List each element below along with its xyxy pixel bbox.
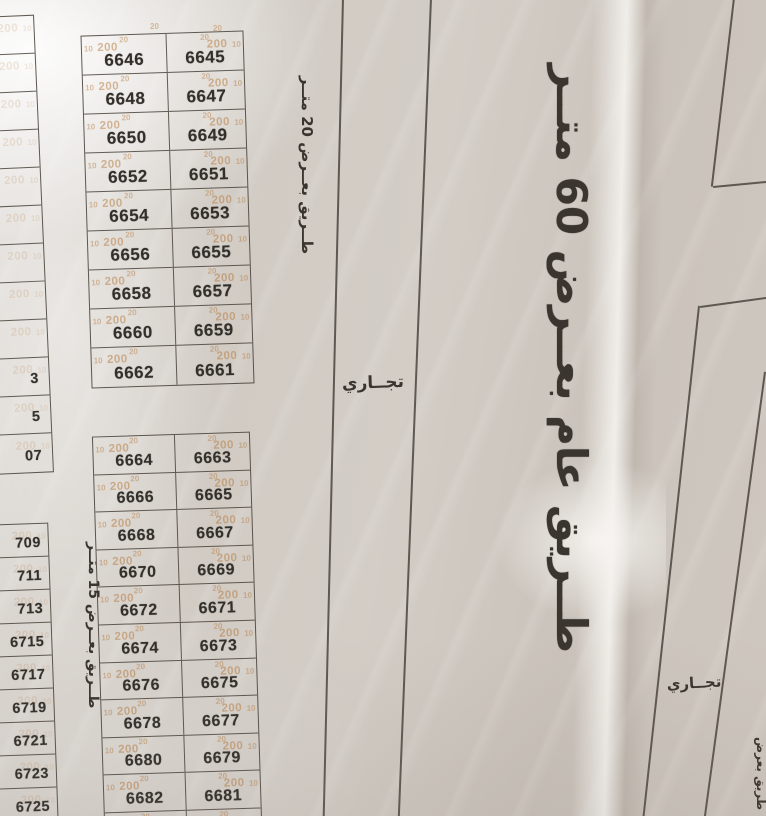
table-row: 200 10 6721 <box>0 722 55 758</box>
dimension-annotation: 200 10 <box>9 284 44 303</box>
plot-number: 6668 <box>96 526 178 547</box>
plot-cell: 200 10 20 6651 <box>169 149 247 189</box>
plot-number: 6679 <box>185 749 260 769</box>
commercial-strip-left-line <box>323 0 344 816</box>
plot-block-left-upper: 200 10 200 10 200 10 200 1 <box>0 15 54 476</box>
table-row: 10 200 20 6648 200 10 20 6647 <box>83 71 245 115</box>
table-row: 10 200 20 6678 200 10 20 6677 <box>101 696 258 738</box>
plot-cell: 200 10 6715 <box>0 623 52 658</box>
dimension-annotation: 200 10 <box>5 208 40 227</box>
plot-cell: 200 10 <box>0 92 38 132</box>
table-row: 10 200 20 6668 200 10 20 6667 <box>95 508 252 550</box>
table-row: 200 10 713 <box>0 590 51 626</box>
plot-cell: 200 10 6719 <box>0 689 54 724</box>
table-row: 200 10 6717 <box>0 656 53 692</box>
plot-number: 6652 <box>86 166 171 189</box>
plot-cell: 200 10 20 6645 <box>165 32 243 72</box>
plot-cell: 10 200 20 6664 <box>93 435 175 474</box>
plot-number: 6661 <box>177 359 254 381</box>
frontage-mark: 20 <box>99 623 180 635</box>
plot-cell: 200 10 6725 <box>0 787 58 816</box>
frontage-mark: 20 <box>96 548 177 560</box>
plot-cell: 10 200 20 6676 <box>100 660 182 699</box>
plot-number: 6719 <box>12 700 47 717</box>
plot-cell: 10 200 20 6666 <box>94 473 176 512</box>
mid-right-block-top-line <box>700 297 766 308</box>
plot-cell: 10 200 20 6682 <box>104 773 186 812</box>
dimension-annotation: 200 10 <box>0 18 32 37</box>
plot-cell: 200 10 20 6657 <box>173 265 251 305</box>
plot-cell: 10 200 20 6670 <box>96 548 178 587</box>
table-row: 200 10 <box>0 92 38 133</box>
table-row: 200 10 <box>0 281 46 322</box>
frontage-mark: 20 <box>84 112 168 124</box>
table-row: 10 200 20 6676 200 10 20 6675 <box>100 658 257 700</box>
plot-cell: 10 200 20 6662 <box>91 346 176 388</box>
plot-number: 6673 <box>181 636 256 656</box>
table-row: 200 10 3 <box>0 357 50 398</box>
plot-number: 6677 <box>184 711 259 731</box>
plot-number: 6658 <box>89 283 174 306</box>
plot-number: 6663 <box>175 448 250 468</box>
plot-number: 3 <box>30 371 39 387</box>
dimension-annotation: 200 10 <box>7 246 42 265</box>
plot-cell: 200 10 07 <box>0 433 53 474</box>
table-row: 10 200 20 6652 200 10 20 6651 <box>85 149 247 193</box>
top-right-block-side-line <box>711 0 735 187</box>
table-row: 10 200 20 6670 200 10 20 6669 <box>96 545 253 587</box>
table-row: 200 10 <box>0 319 48 360</box>
frontage-mark: 20 <box>93 435 174 447</box>
plot-number: 6670 <box>97 563 179 584</box>
plot-cell: 10 200 20 6646 <box>82 34 167 75</box>
plot-number: 6678 <box>102 714 184 735</box>
plot-number: 6651 <box>171 163 248 185</box>
frontage-mark: 20 <box>187 808 261 816</box>
plot-number: 6649 <box>169 125 246 147</box>
table-row: 200 10 <box>0 54 36 95</box>
plot-cell: 200 10 20 6675 <box>181 658 257 697</box>
plot-number: 6671 <box>180 599 255 619</box>
plat-map-photo: 200 10 200 10 200 10 200 1 <box>0 0 766 816</box>
plot-number: 6666 <box>95 488 177 509</box>
plot-cell: 10 200 20 6648 <box>83 73 168 114</box>
plot-number: 6665 <box>177 486 252 506</box>
plot-number: 709 <box>15 535 41 552</box>
frontage-mark: 20 <box>90 307 174 319</box>
table-row: 200 10 07 <box>0 433 53 474</box>
plot-cell: 10 200 20 6672 <box>98 585 180 624</box>
frontage-mark: 20 <box>95 510 176 522</box>
plot-cell: 10 200 20 6660 <box>90 307 175 348</box>
frontage-mark: 20 <box>104 773 185 785</box>
table-row: 200 10 <box>0 130 40 171</box>
plot-number: 6715 <box>10 634 45 651</box>
top-right-block-bottom-line <box>713 181 766 188</box>
plot-cell: 10 200 20 6654 <box>86 190 171 231</box>
plot-cell: 200 10 <box>0 281 46 321</box>
table-row: 10 200 20 6682 200 10 20 6681 <box>104 771 261 813</box>
plot-block-upper: 10 200 20 6646 200 10 20 6645 10 200 20 … <box>80 31 254 389</box>
plot-number: 6660 <box>91 322 176 345</box>
plot-cell: 200 10 711 <box>0 557 49 592</box>
plot-cell: 200 10 20 6683 <box>186 808 262 816</box>
road-label-bottom-right: طريق بعرض <box>754 737 766 816</box>
table-row: 10 200 20 6662 200 10 20 6661 <box>91 343 253 387</box>
plot-number: 6674 <box>99 638 181 659</box>
plot-cell: 200 10 20 6671 <box>179 583 255 622</box>
dimension-annotation: 200 10 <box>0 56 34 75</box>
table-row: 10 200 20 6660 200 10 20 6659 <box>90 304 252 348</box>
plot-cell: 200 10 20 6679 <box>183 733 259 772</box>
table-row: 10 200 20 6666 200 10 20 6665 <box>94 470 251 512</box>
plot-number: 6650 <box>84 127 169 150</box>
dimension-annotation: 200 10 <box>2 132 37 151</box>
frontage-mark: 20 <box>83 73 167 85</box>
plot-cell: 200 10 <box>0 16 35 56</box>
frontage-mark: 20 <box>86 190 170 202</box>
plot-cell: 200 10 5 <box>0 395 51 435</box>
plot-cell: 200 10 20 6667 <box>176 508 252 547</box>
plot-cell: 200 10 713 <box>0 590 51 625</box>
table-row: 10 200 20 6664 200 10 20 6663 <box>93 433 250 475</box>
table-row: 200 10 <box>0 16 35 57</box>
plot-number: 6657 <box>174 280 251 302</box>
frontage-mark: 20 <box>91 346 175 358</box>
plot-cell: 10 200 20 6652 <box>85 151 170 192</box>
plot-cell: 200 10 <box>0 168 41 208</box>
plot-cell: 200 10 20 6669 <box>177 545 253 584</box>
plot-number: 6717 <box>11 667 46 684</box>
plot-cell: 10 200 20 6674 <box>99 623 181 662</box>
plot-number: 711 <box>17 568 42 585</box>
plot-number: 6647 <box>168 86 245 108</box>
frontage-mark: 20 <box>150 22 159 31</box>
plot-number: 6645 <box>167 47 244 69</box>
road-15m-label: طــريق بعــرض 15 متــر <box>85 542 101 702</box>
plot-number: 6667 <box>178 523 253 543</box>
frontage-mark: 20 <box>100 660 181 672</box>
plot-number: 713 <box>17 601 43 618</box>
plot-number: 07 <box>25 448 43 465</box>
plot-cell: 200 10 <box>0 54 36 94</box>
table-row: 10 200 20 6656 200 10 20 6655 <box>88 226 250 270</box>
plot-cell: 200 10 20 6655 <box>172 226 250 266</box>
plot-cell: 10 200 20 6658 <box>89 268 174 309</box>
table-row: 10 200 20 6654 200 10 20 6653 <box>86 187 248 231</box>
table-row: 200 10 <box>0 243 45 284</box>
plot-number: 6675 <box>182 674 257 694</box>
frontage-mark: 20 <box>98 585 179 597</box>
plot-cell: 200 10 6721 <box>0 722 55 757</box>
table-row: 10 200 20 6646 200 10 20 6645 <box>82 32 244 76</box>
plot-cell: 10 200 20 6656 <box>88 229 173 270</box>
dimension-annotation: 200 10 <box>0 94 35 113</box>
commercial-strip-right-line <box>398 0 432 816</box>
table-row: 200 10 <box>0 206 43 247</box>
plot-cell: 200 10 20 6659 <box>174 304 252 344</box>
plot-cell: 10 200 20 6650 <box>84 112 169 153</box>
table-row: 10 200 20 6658 200 10 20 6657 <box>89 265 251 309</box>
plot-block-lower: 10 200 20 6664 200 10 20 6663 10 200 20 … <box>92 432 264 816</box>
plot-number: 6656 <box>88 244 173 267</box>
plot-number: 6653 <box>172 202 249 224</box>
plot-cell: 200 10 20 6677 <box>182 696 258 735</box>
frontage-mark: 20 <box>85 151 169 163</box>
table-row: 10 200 20 6674 200 10 20 6673 <box>99 621 256 663</box>
frontage-mark: 20 <box>101 698 182 710</box>
table-row: 200 10 5 <box>0 395 51 436</box>
road-60m-label: طــريق عام بعــرض 60 متــر <box>547 64 596 534</box>
plot-cell: 200 10 20 6665 <box>175 470 251 509</box>
plot-number: 6681 <box>186 786 261 806</box>
plot-cell: 200 10 6717 <box>0 656 53 691</box>
plot-cell: 200 10 <box>0 319 48 359</box>
table-row: 10 200 20 6650 200 10 20 6649 <box>84 110 246 154</box>
plot-cell: 10 200 20 6680 <box>102 736 184 775</box>
plot-number: 6672 <box>98 601 180 622</box>
plot-number: 6664 <box>93 451 175 472</box>
plot-number: 6682 <box>104 789 186 810</box>
commercial-zone-label-mid: تجــاري <box>336 372 411 395</box>
frontage-mark: 20 <box>88 229 172 241</box>
plot-cell: 200 10 <box>0 130 40 170</box>
dimension-annotation: 200 10 <box>10 321 45 340</box>
plot-number: 6669 <box>179 561 254 581</box>
table-row: 200 10 709 <box>0 524 48 560</box>
plot-number: 6659 <box>176 319 253 341</box>
road-20m-label: طــريق بعــرض 20 متــر <box>298 68 316 262</box>
plot-number: 6676 <box>101 676 183 697</box>
plot-block-left-lower: 200 10 709 200 10 711 200 10 713 <box>0 523 60 816</box>
table-row: 200 10 6723 <box>0 754 56 790</box>
frontage-mark: 20 <box>82 34 166 46</box>
dimension-annotation: 200 10 <box>4 170 39 189</box>
frontage-mark: 20 <box>102 736 183 748</box>
plot-number: 6725 <box>16 799 51 816</box>
plot-number: 6680 <box>103 751 185 772</box>
plot-cell: 200 10 20 6661 <box>175 343 253 384</box>
frontage-mark: 20 <box>94 473 175 485</box>
commercial-zone-label-right: تجــاري <box>658 672 731 694</box>
table-row: 10 200 20 6680 200 10 20 6679 <box>102 733 259 775</box>
plot-cell: 200 10 20 6653 <box>170 187 248 227</box>
plot-cell: 200 10 20 6647 <box>167 71 245 111</box>
plot-number: 6646 <box>82 49 167 72</box>
table-row: 200 10 711 <box>0 557 50 593</box>
plot-cell: 200 10 20 6673 <box>180 621 256 660</box>
plot-cell: 10 200 20 6678 <box>101 698 183 737</box>
plot-number: 6655 <box>173 241 250 263</box>
plot-number: 5 <box>32 409 41 425</box>
plot-number: 6723 <box>14 766 49 783</box>
plot-cell: 200 10 6723 <box>0 754 56 789</box>
table-row: 200 10 6725 <box>0 787 58 816</box>
plot-cell: 200 10 20 6663 <box>174 433 250 472</box>
plot-number: 6721 <box>13 733 48 750</box>
plot-number: 6662 <box>92 362 177 385</box>
plot-cell: 200 10 20 6681 <box>185 771 261 810</box>
plot-number: 6654 <box>87 205 172 228</box>
plot-cell: 200 10 20 6649 <box>168 110 246 150</box>
table-row: 200 10 6715 <box>0 623 52 659</box>
table-row: 10 200 20 6672 200 10 20 6671 <box>98 583 255 625</box>
frontage-mark: 20 <box>89 268 173 280</box>
plot-cell: 200 10 <box>0 243 45 283</box>
mid-right-block-side-line <box>643 306 700 816</box>
plot-number: 6648 <box>83 88 168 111</box>
plot-cell: 10 200 20 6668 <box>95 510 177 549</box>
plot-cell: 200 10 <box>0 206 43 246</box>
plot-cell: 200 10 3 <box>0 357 50 397</box>
table-row: 200 10 6719 <box>0 689 54 725</box>
table-row: 200 10 <box>0 168 41 209</box>
plot-cell: 200 10 709 <box>0 524 48 559</box>
